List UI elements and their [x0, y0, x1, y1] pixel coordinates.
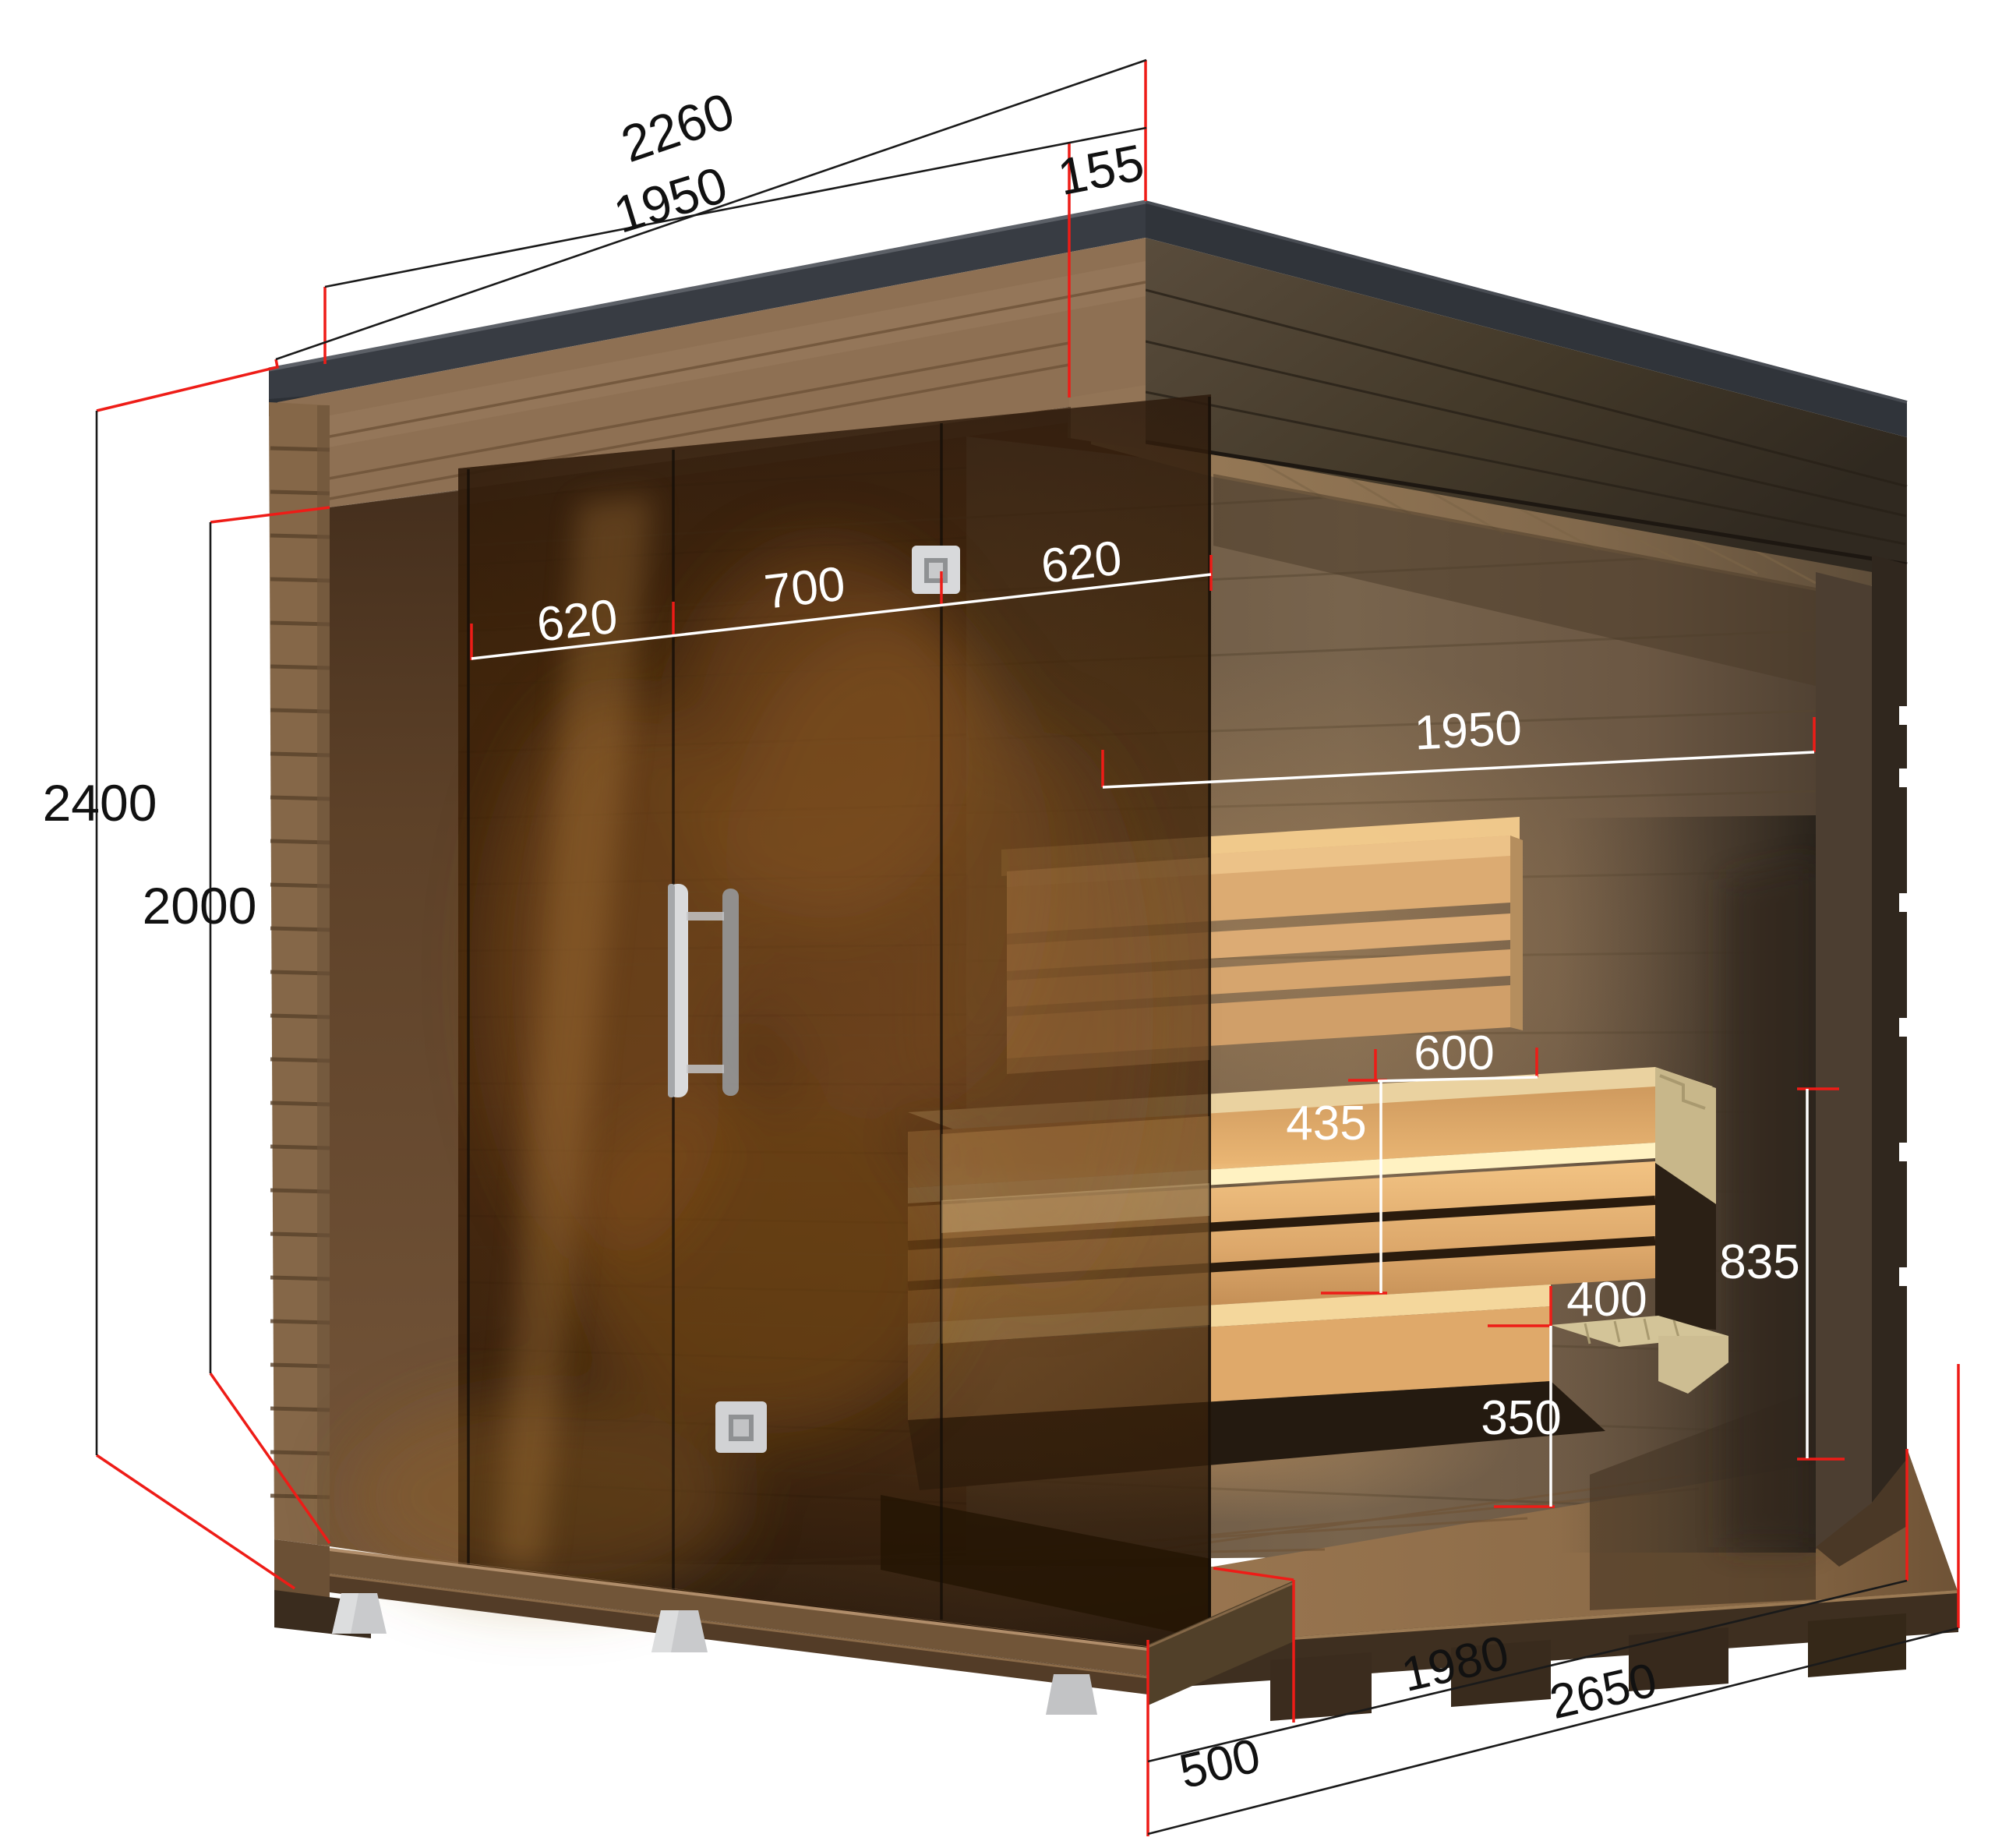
svg-text:600: 600 [1414, 1026, 1494, 1080]
svg-text:2400: 2400 [43, 774, 157, 832]
svg-text:620: 620 [534, 589, 620, 652]
svg-text:700: 700 [761, 557, 848, 619]
svg-text:1950: 1950 [1413, 701, 1523, 760]
svg-text:2000: 2000 [143, 877, 257, 935]
svg-text:620: 620 [1038, 531, 1125, 593]
svg-text:435: 435 [1286, 1097, 1366, 1150]
svg-text:350: 350 [1481, 1391, 1561, 1445]
svg-text:400: 400 [1566, 1273, 1647, 1327]
svg-text:835: 835 [1719, 1235, 1799, 1289]
